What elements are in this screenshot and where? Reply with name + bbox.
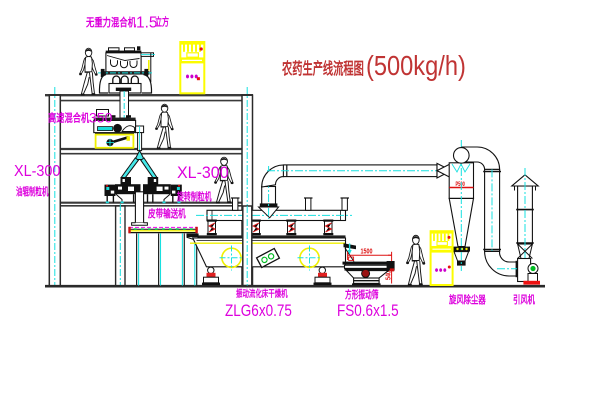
svg-text:立方: 立方 <box>155 15 169 28</box>
svg-text:●●●: ●●● <box>435 265 447 275</box>
svg-text:油辊制粒机: 油辊制粒机 <box>16 184 49 197</box>
svg-text:(500kg/h): (500kg/h) <box>366 51 466 81</box>
svg-text:P500: P500 <box>456 181 465 188</box>
svg-text:1.5: 1.5 <box>136 15 158 32</box>
svg-text:旋转制粒机: 旋转制粒机 <box>176 189 211 202</box>
svg-text:振动流化床干燥机: 振动流化床干燥机 <box>236 288 288 300</box>
svg-text:引风机: 引风机 <box>513 293 536 306</box>
svg-text:高速混合机: 高速混合机 <box>48 110 89 125</box>
svg-text:XL-300: XL-300 <box>177 164 229 182</box>
svg-text:ZLG6x0.75: ZLG6x0.75 <box>225 302 292 321</box>
svg-text:旋风除尘器: 旋风除尘器 <box>448 293 486 306</box>
svg-text:FS0.6x1.5: FS0.6x1.5 <box>337 302 399 321</box>
svg-text:方形振动筛: 方形振动筛 <box>345 287 379 300</box>
svg-text:350: 350 <box>89 110 113 126</box>
svg-text:1500: 1500 <box>361 248 373 256</box>
svg-text:皮带输送机: 皮带输送机 <box>147 207 186 220</box>
svg-text:XL-300: XL-300 <box>14 162 60 180</box>
svg-text:农药生产线流程图: 农药生产线流程图 <box>281 59 364 78</box>
svg-text:无重力混合机: 无重力混合机 <box>85 15 136 30</box>
svg-text:●●●: ●●● <box>185 71 198 81</box>
